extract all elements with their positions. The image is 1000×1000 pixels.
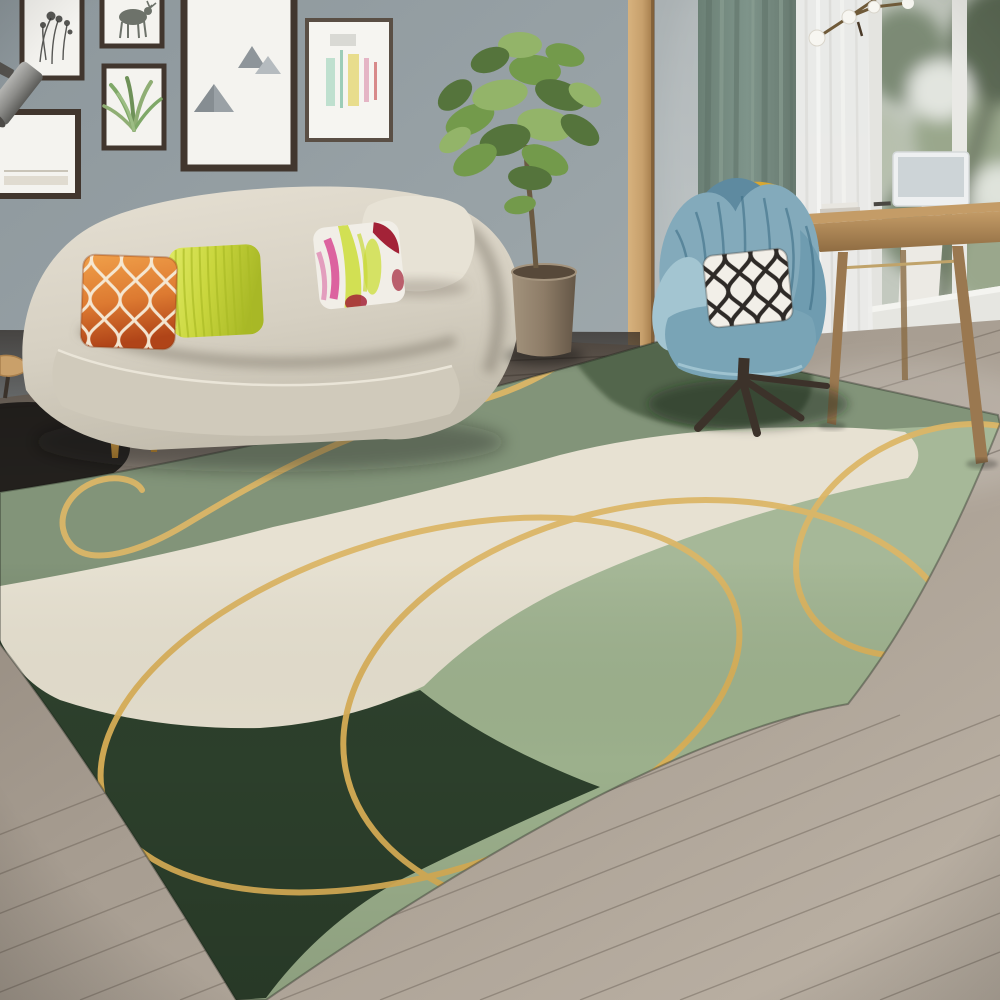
living-room-scene bbox=[0, 0, 1000, 1000]
vignette-overlay bbox=[0, 0, 1000, 1000]
living-room-photo bbox=[0, 0, 1000, 1000]
